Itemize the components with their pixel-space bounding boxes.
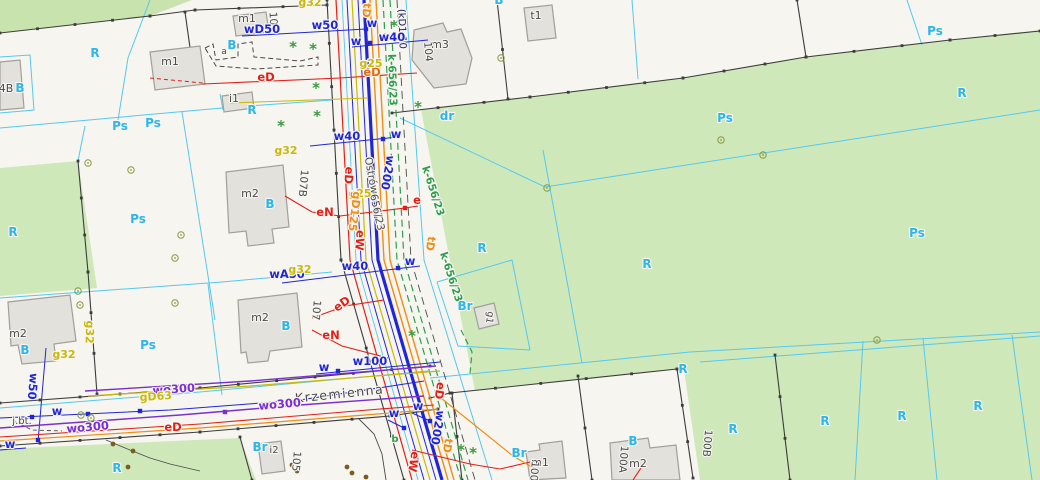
utility-node	[138, 409, 142, 413]
map-label-tD: tD	[423, 235, 438, 251]
survey-point	[330, 85, 333, 88]
deciduous-tree-icon	[350, 471, 355, 476]
map-label-b: b	[391, 434, 398, 445]
map-label-m2: m2	[241, 187, 259, 200]
orchard-tree-icon	[762, 154, 764, 156]
survey-point	[483, 101, 486, 104]
building-m1	[150, 46, 205, 90]
map-label-k-656-23: k-656/23	[385, 54, 399, 106]
map-label-Ps: Ps	[717, 111, 733, 125]
survey-point	[326, 0, 329, 1]
orchard-tree-icon	[546, 187, 548, 189]
survey-point	[238, 7, 241, 10]
survey-point	[239, 436, 242, 439]
utility-node	[428, 419, 432, 423]
map-label-w: w	[405, 254, 416, 268]
map-label-w: w	[367, 16, 378, 30]
survey-point	[275, 379, 278, 382]
map-label-R: R	[957, 86, 966, 100]
survey-point	[686, 440, 689, 443]
map-label-eD: eD	[164, 420, 181, 434]
map-label-R: R	[678, 362, 687, 376]
survey-point	[507, 98, 510, 101]
map-label-R: R	[728, 422, 737, 436]
survey-point	[184, 11, 187, 14]
map-label-w: w	[389, 406, 400, 420]
deciduous-tree-icon	[126, 465, 131, 470]
map-label-R: R	[247, 103, 256, 117]
conifer-tree-icon: *	[414, 98, 422, 116]
conifer-tree-icon: *	[277, 117, 285, 135]
map-label-w50: w50	[25, 372, 41, 400]
orchard-tree-icon	[79, 304, 81, 306]
orchard-tree-icon	[174, 257, 176, 259]
map-label-g25: g25	[359, 57, 382, 70]
map-label-R: R	[112, 461, 121, 475]
survey-point	[682, 77, 685, 80]
utility-node	[223, 410, 227, 414]
map-label-B: B	[227, 38, 236, 52]
map-viewport[interactable]: ********** RRRRRRRRRRRRPsPsPsPsPsPsPsBBB…	[0, 0, 1040, 480]
map-label-Ps: Ps	[130, 212, 146, 226]
survey-point	[723, 70, 726, 73]
map-label-tD: tD	[359, 3, 373, 18]
survey-point	[501, 48, 504, 51]
map-label-wD50: wD50	[244, 22, 280, 36]
map-label-R: R	[973, 399, 982, 413]
map-label-R: R	[477, 241, 486, 255]
map-label-g32: g32	[83, 320, 97, 344]
map-label-R: R	[820, 414, 829, 428]
map-label-R: R	[90, 46, 99, 60]
map-label-Br: Br	[252, 440, 267, 454]
map-label-eD: eD	[432, 381, 449, 401]
map-label-m1: m1	[161, 55, 179, 68]
survey-point	[328, 42, 331, 45]
orchard-tree-icon	[77, 290, 79, 292]
map-label-w: w	[52, 404, 63, 418]
orchard-tree-icon	[500, 57, 502, 59]
orchard-tree-icon	[80, 414, 82, 416]
orchard-tree-icon	[180, 234, 182, 236]
conifer-tree-icon: *	[289, 38, 297, 56]
survey-point	[199, 431, 202, 434]
map-label-g32: g32	[52, 348, 75, 361]
map-label-t1: t1	[530, 9, 541, 22]
map-label-w50: w50	[312, 18, 339, 32]
map-label-w: w	[391, 127, 402, 141]
map-label-tD: tD	[440, 437, 455, 453]
map-label-4B: 4B	[0, 82, 13, 95]
map-label-B: B	[494, 0, 503, 7]
map-label-w40: w40	[379, 30, 406, 44]
survey-point	[853, 50, 856, 53]
utility-node	[368, 41, 372, 45]
survey-point	[282, 5, 285, 8]
cadastral-map-canvas[interactable]: ********** RRRRRRRRRRRRPsPsPsPsPsPsPsBBB…	[0, 0, 1040, 480]
conifer-tree-icon: *	[457, 441, 465, 459]
map-label-gD63: gD63	[139, 389, 172, 404]
map-label-104: 104	[421, 41, 435, 62]
map-label-R: R	[642, 257, 651, 271]
survey-point	[149, 15, 152, 18]
orchard-tree-icon	[90, 417, 92, 419]
map-label-m2: m2	[9, 327, 27, 340]
survey-point	[692, 477, 695, 480]
map-label-eD: eD	[341, 166, 356, 185]
deciduous-tree-icon	[345, 465, 350, 470]
map-label-g1: g1	[483, 311, 496, 325]
deciduous-tree-icon	[364, 475, 369, 480]
survey-point	[774, 354, 777, 357]
survey-point	[36, 27, 39, 30]
map-label-100A: 100A	[616, 445, 630, 474]
map-label-Br: Br	[511, 446, 526, 460]
map-label-a: a	[221, 47, 227, 57]
map-label-Ps: Ps	[145, 116, 161, 130]
survey-point	[779, 395, 782, 398]
survey-point	[119, 436, 122, 439]
survey-point	[567, 91, 570, 94]
survey-point	[313, 421, 316, 424]
survey-point	[275, 424, 278, 427]
survey-point	[351, 418, 354, 421]
survey-point	[111, 19, 114, 22]
survey-point	[391, 112, 394, 115]
survey-point	[529, 96, 532, 99]
survey-point	[630, 372, 633, 375]
conifer-tree-icon: *	[313, 107, 321, 125]
utility-node	[396, 266, 400, 270]
map-label-m2: m2	[251, 311, 269, 324]
map-label-eW: eW	[352, 230, 368, 252]
map-label-R: R	[8, 225, 17, 239]
map-label-Ps: Ps	[927, 24, 943, 38]
survey-point	[605, 86, 608, 89]
survey-point	[585, 377, 588, 380]
map-label-100: 100	[527, 461, 541, 480]
survey-point	[194, 9, 197, 12]
map-label-eD: eD	[257, 70, 274, 84]
survey-point	[365, 347, 368, 350]
survey-point	[90, 311, 93, 314]
conifer-tree-icon: *	[408, 327, 416, 345]
survey-point	[237, 427, 240, 430]
survey-point	[39, 442, 42, 445]
survey-point	[93, 352, 96, 355]
map-label-B: B	[20, 343, 29, 357]
map-label-m2: m2	[629, 457, 647, 470]
map-label-i2: i2	[269, 445, 278, 456]
survey-point	[0, 445, 1, 448]
survey-point	[764, 63, 767, 66]
map-label-B: B	[15, 81, 24, 95]
map-label-Ps: Ps	[140, 338, 156, 352]
map-label-g32: g32	[298, 0, 321, 9]
map-label-100B: 100B	[700, 429, 714, 457]
survey-point	[77, 160, 80, 163]
utility-node	[403, 206, 407, 210]
survey-point	[784, 437, 787, 440]
conifer-tree-icon: *	[309, 40, 317, 58]
survey-point	[0, 32, 1, 35]
survey-point	[994, 34, 997, 37]
conifer-tree-icon: *	[312, 79, 320, 97]
map-label-w: w	[413, 399, 424, 413]
map-label-w: w	[351, 34, 362, 48]
survey-point	[80, 197, 83, 200]
survey-point	[577, 375, 580, 378]
survey-point	[949, 39, 952, 42]
map-label-g32: g32	[274, 144, 297, 157]
survey-point	[805, 56, 808, 59]
map-label-i1: i1	[229, 92, 239, 105]
map-label-107B: 107B	[296, 169, 310, 197]
map-label-w40: w40	[342, 259, 369, 273]
map-label-107: 107	[309, 300, 323, 321]
map-label-Ps: Ps	[112, 119, 128, 133]
survey-point	[79, 396, 82, 399]
map-label-105: 105	[289, 451, 303, 472]
orchard-tree-icon	[720, 139, 722, 141]
map-label-eN: eN	[316, 205, 333, 219]
deciduous-tree-icon	[111, 442, 116, 447]
orchard-tree-icon	[130, 169, 132, 171]
map-label-w: w	[319, 360, 330, 374]
survey-point	[237, 383, 240, 386]
survey-point	[335, 172, 338, 175]
map-label-Ps: Ps	[909, 226, 925, 240]
utility-node	[336, 369, 340, 373]
map-label-eN: eN	[322, 328, 339, 342]
survey-point	[451, 392, 454, 395]
orchard-tree-icon	[876, 339, 878, 341]
survey-point	[643, 81, 646, 84]
survey-point	[901, 44, 904, 47]
utility-node	[36, 438, 40, 442]
map-label-B: B	[281, 319, 290, 333]
deciduous-tree-icon	[131, 449, 136, 454]
survey-point	[681, 404, 684, 407]
survey-point	[584, 427, 587, 430]
survey-point	[0, 402, 1, 405]
survey-point	[494, 387, 497, 390]
survey-point	[74, 23, 77, 26]
map-label-R: R	[897, 409, 906, 423]
survey-point	[87, 271, 90, 274]
map-label-j-bt-: j.bt.	[11, 416, 31, 427]
map-label-B: B	[265, 197, 274, 211]
map-label-g32: g32	[288, 263, 311, 276]
conifer-tree-icon: *	[469, 444, 477, 462]
map-label-w100: w100	[353, 354, 388, 368]
map-label-e: e	[413, 193, 421, 207]
survey-point	[796, 0, 799, 1]
orchard-tree-icon	[174, 302, 176, 304]
survey-point	[79, 439, 82, 442]
map-label-dr: dr	[440, 109, 455, 123]
survey-point	[539, 382, 542, 385]
utility-node	[381, 137, 385, 141]
map-label-w: w	[5, 437, 16, 451]
orchard-tree-icon	[87, 162, 89, 164]
survey-point	[83, 234, 86, 237]
utility-node	[402, 426, 406, 430]
survey-point	[159, 433, 162, 436]
map-label-w40: w40	[334, 129, 361, 143]
